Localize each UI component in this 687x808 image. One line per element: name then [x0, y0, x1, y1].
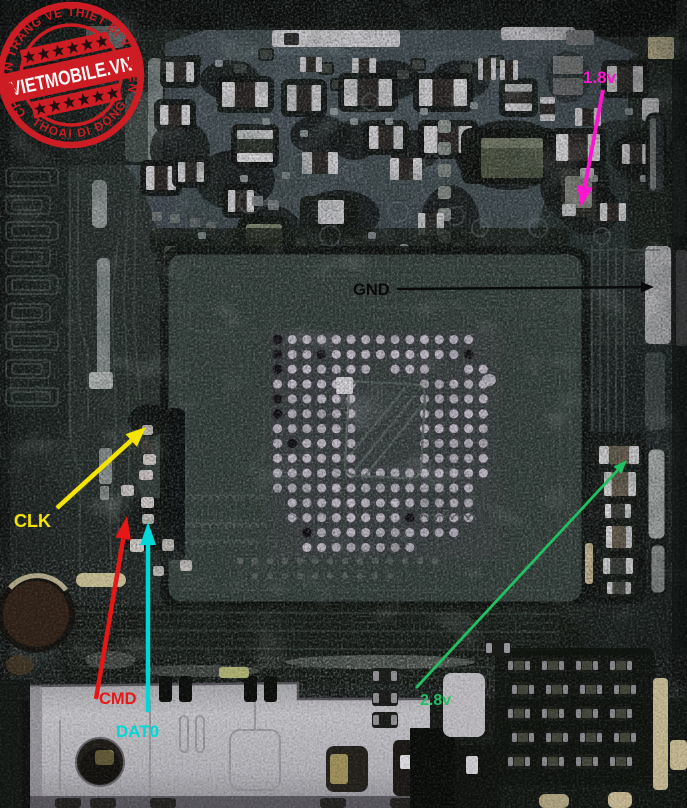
svg-text:CLK: CLK	[14, 511, 51, 531]
svg-text:GND: GND	[353, 281, 390, 299]
svg-text:2.8v: 2.8v	[420, 692, 451, 709]
svg-text:1.8v: 1.8v	[583, 68, 617, 87]
svg-text:CMD: CMD	[99, 690, 137, 708]
svg-text:DAT0: DAT0	[116, 722, 159, 741]
